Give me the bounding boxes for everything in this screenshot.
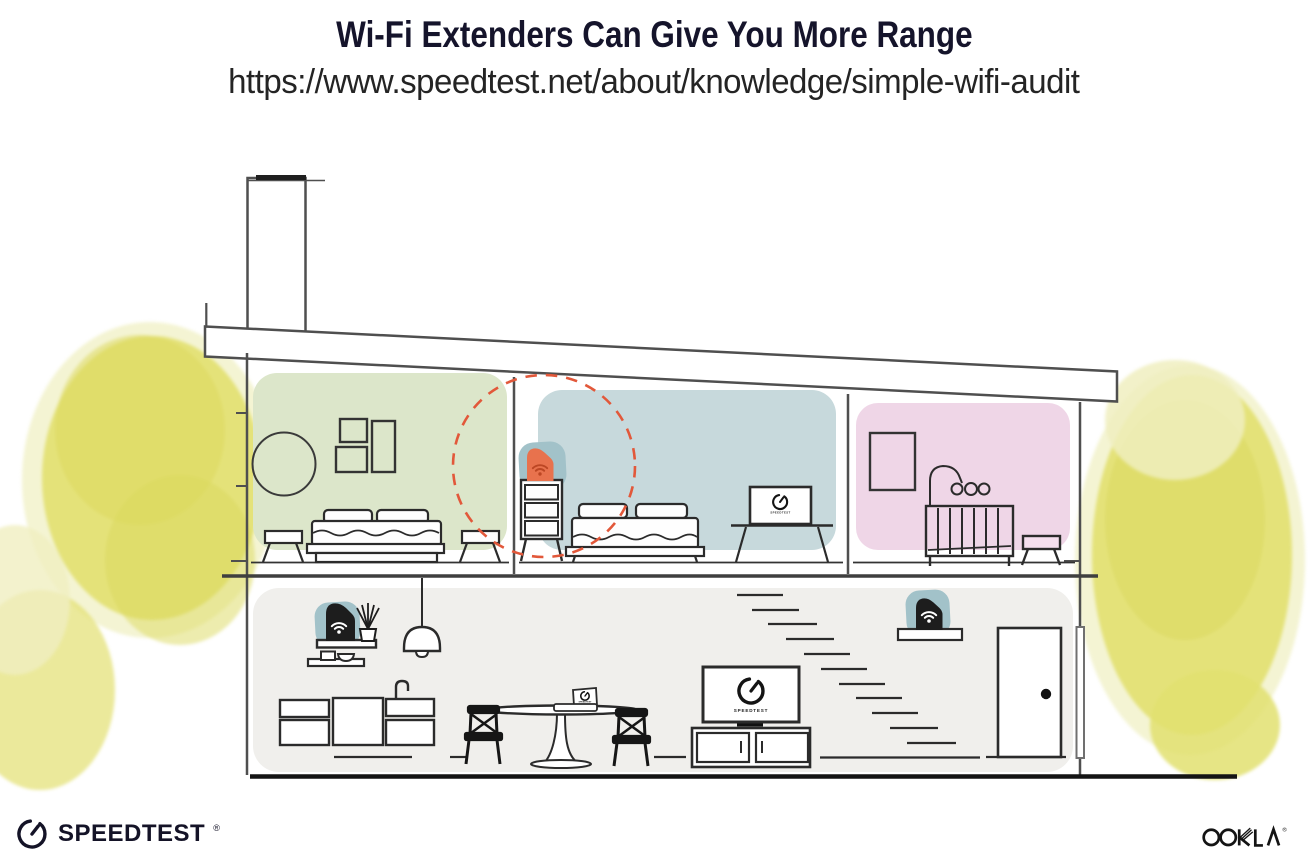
source-url: https://www.speedtest.net/about/knowledg… xyxy=(228,63,1079,102)
foliage-left xyxy=(0,322,278,790)
door-knob xyxy=(1041,689,1051,699)
foliage-right xyxy=(1075,360,1305,780)
tv-screen-text: SPEEDTEST xyxy=(770,511,790,515)
tv-screen-text: SPEEDTEST xyxy=(734,708,769,713)
bed xyxy=(566,504,704,562)
stool xyxy=(1022,536,1060,565)
bedroom-blue: SPEEDTEST xyxy=(538,390,836,562)
footer: SPEEDTEST® OOKLA ® xyxy=(16,817,1290,851)
bedroom-green xyxy=(253,373,508,562)
tv-living xyxy=(703,667,799,722)
source-url-line: https://www.speedtest.net/about/knowledg… xyxy=(0,63,1308,102)
nursery-pink xyxy=(856,403,1070,566)
speedtest-logo: SPEEDTEST® xyxy=(16,817,220,851)
cup xyxy=(321,652,335,661)
ookla-logo: OOKLA ® xyxy=(1202,821,1290,847)
wall-trim xyxy=(1077,627,1085,758)
page-title: Wi-Fi Extenders Can Give You More Range xyxy=(336,14,972,56)
house-illustration: SPEEDTEST xyxy=(0,0,1308,861)
table-base xyxy=(531,760,591,768)
tv-foot xyxy=(737,724,763,727)
front-door xyxy=(998,628,1061,757)
registered-mark: ® xyxy=(1282,826,1287,833)
registered-mark: ® xyxy=(213,823,220,833)
living-area: SPEEDTEST xyxy=(253,578,1084,772)
tv-media-unit: SPEEDTEST xyxy=(692,667,810,767)
chimney xyxy=(248,178,306,348)
bowl xyxy=(338,654,354,661)
speedtest-gauge-icon xyxy=(16,817,50,851)
shelf-board xyxy=(898,629,962,640)
header: Wi-Fi Extenders Can Give You More Range … xyxy=(0,14,1308,102)
infographic-page: Wi-Fi Extenders Can Give You More Range … xyxy=(0,0,1308,861)
speedtest-wordmark: SPEEDTEST xyxy=(58,820,205,848)
ookla-wordmark: ® xyxy=(1202,821,1290,847)
